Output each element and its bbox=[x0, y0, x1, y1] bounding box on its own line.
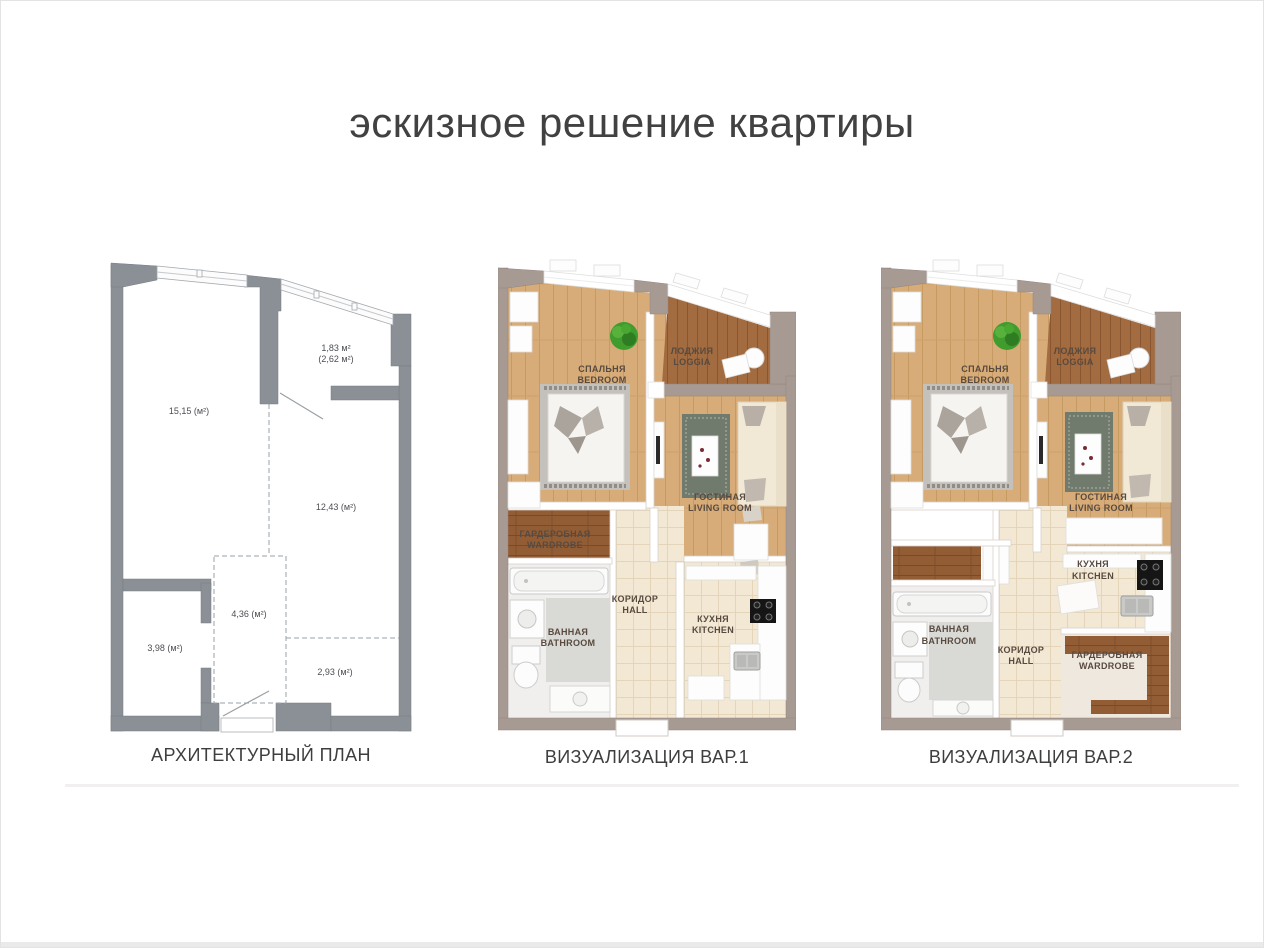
kitchen-cabinets bbox=[686, 566, 756, 580]
entry-threshold bbox=[1011, 720, 1063, 736]
area-label-living: 12,43 (м²) bbox=[316, 502, 356, 512]
room-label-wardrobe-en: WARDROBE bbox=[1079, 661, 1135, 671]
coffee-table bbox=[1075, 434, 1101, 474]
toilet-bowl bbox=[898, 678, 920, 702]
bed bbox=[931, 394, 1007, 482]
dresser-top bbox=[893, 546, 981, 584]
sofa-cushion bbox=[1129, 474, 1151, 498]
page: эскизное решение квартиры bbox=[0, 0, 1264, 948]
shelf bbox=[891, 482, 923, 508]
wardrobe-bottom bbox=[1091, 700, 1169, 714]
closet bbox=[510, 292, 538, 322]
visualization-var1-drawing: СПАЛЬНЯ BEDROOM ЛОДЖИЯ LOGGIA ГОСТИНАЯ L… bbox=[498, 256, 796, 738]
room-label-living-ru: ГОСТИНАЯ bbox=[1075, 492, 1127, 502]
room-label-bedroom-en: BEDROOM bbox=[577, 375, 626, 385]
room-label-bedroom-ru: СПАЛЬНЯ bbox=[578, 364, 625, 374]
room-label-loggia-en: LOGGIA bbox=[1056, 357, 1093, 367]
kitchen-cart bbox=[688, 676, 724, 700]
shelf bbox=[508, 482, 540, 508]
room-label-wardrobe-en: WARDROBE bbox=[527, 540, 583, 550]
room-label-hall-ru: КОРИДОР bbox=[612, 594, 658, 604]
dresser bbox=[510, 326, 532, 352]
room-label-bathroom-ru: ВАННАЯ bbox=[929, 624, 969, 634]
dining-table bbox=[734, 524, 768, 560]
room-label-hall-en: HALL bbox=[1008, 656, 1033, 666]
room-label-wardrobe-ru: ГАРДЕРОБНАЯ bbox=[1071, 650, 1142, 660]
room-label-living-ru: ГОСТИНАЯ bbox=[694, 492, 746, 502]
room-label-hall-ru: КОРИДОР bbox=[998, 645, 1044, 655]
area-label-loggia-line2: (2,62 м²) bbox=[318, 354, 353, 364]
room-label-loggia-en: LOGGIA bbox=[673, 357, 710, 367]
plan-doors bbox=[221, 393, 323, 732]
bed bbox=[548, 394, 624, 482]
architectural-plan-drawing: 1,83 м² (2,62 м²) 15,15 (м²) 12,43 (м²) … bbox=[109, 259, 413, 736]
plan-walls bbox=[111, 263, 411, 731]
panel-architectural-plan: 1,83 м² (2,62 м²) 15,15 (м²) 12,43 (м²) … bbox=[109, 259, 413, 766]
closet bbox=[893, 292, 921, 322]
page-title: эскизное решение квартиры bbox=[1, 99, 1263, 147]
room-label-kitchen-ru: КУХНЯ bbox=[697, 614, 729, 624]
room-label-living-en: LIVING ROOM bbox=[1069, 503, 1133, 513]
tv bbox=[1039, 436, 1043, 464]
caption-visualization-var2: ВИЗУАЛИЗАЦИЯ ВАР.2 bbox=[881, 747, 1181, 768]
room-label-bedroom-ru: СПАЛЬНЯ bbox=[961, 364, 1008, 374]
area-label-bathroom: 3,98 (м²) bbox=[147, 643, 182, 653]
page-bottom-edge bbox=[1, 942, 1263, 947]
bench bbox=[508, 400, 528, 474]
room-label-bedroom-en: BEDROOM bbox=[960, 375, 1009, 385]
room-label-kitchen-en: KITCHEN bbox=[692, 625, 734, 635]
visualization-var2-drawing: СПАЛЬНЯ BEDROOM ЛОДЖИЯ LOGGIA ГОСТИНАЯ L… bbox=[881, 256, 1181, 738]
sofa-back bbox=[776, 402, 786, 506]
basin bbox=[573, 692, 587, 706]
coffee-table bbox=[692, 436, 718, 476]
entry-threshold bbox=[616, 720, 668, 736]
toilet-bowl bbox=[514, 662, 538, 688]
divider-line bbox=[65, 784, 1239, 787]
area-label-hall: 4,36 (м²) bbox=[231, 609, 266, 619]
room-label-bathroom-en: BATHROOM bbox=[922, 636, 977, 646]
plant-icon bbox=[993, 322, 1021, 350]
v2-bathroom-fixtures bbox=[893, 592, 993, 716]
stove bbox=[750, 599, 776, 623]
plan-area-labels: 1,83 м² (2,62 м²) 15,15 (м²) 12,43 (м²) … bbox=[147, 343, 356, 677]
stove bbox=[1137, 560, 1163, 590]
plan-dashed-partitions bbox=[214, 404, 399, 703]
area-label-loggia-line1: 1,83 м² bbox=[321, 343, 350, 353]
room-label-loggia-ru: ЛОДЖИЯ bbox=[671, 346, 713, 356]
sofa-cushion bbox=[744, 478, 766, 502]
room-label-kitchen-ru: КУХНЯ bbox=[1077, 559, 1109, 569]
basin bbox=[957, 702, 969, 714]
room-label-kitchen-en: KITCHEN bbox=[1072, 571, 1114, 581]
room-label-hall-en: HALL bbox=[622, 605, 647, 615]
sofa-back bbox=[1161, 402, 1171, 502]
kitchen-counter bbox=[758, 566, 786, 700]
bench bbox=[891, 400, 911, 474]
room-label-loggia-ru: ЛОДЖИЯ bbox=[1054, 346, 1096, 356]
area-label-bedroom: 15,15 (м²) bbox=[169, 406, 209, 416]
kitchen-island bbox=[1057, 580, 1099, 614]
tv bbox=[656, 436, 660, 464]
room-label-living-en: LIVING ROOM bbox=[688, 503, 752, 513]
plant-icon bbox=[610, 322, 638, 350]
room-label-bathroom-en: BATHROOM bbox=[541, 638, 596, 648]
caption-visualization-var1: ВИЗУАЛИЗАЦИЯ ВАР.1 bbox=[498, 747, 796, 768]
panel-visualization-var2: СПАЛЬНЯ BEDROOM ЛОДЖИЯ LOGGIA ГОСТИНАЯ L… bbox=[881, 256, 1181, 768]
room-label-bathroom-ru: ВАННАЯ bbox=[548, 627, 588, 637]
toilet-tank bbox=[895, 662, 923, 678]
toilet-tank bbox=[512, 646, 540, 664]
area-label-kitchen: 2,93 (м²) bbox=[317, 667, 352, 677]
room-label-wardrobe-ru: ГАРДЕРОБНАЯ bbox=[519, 529, 590, 539]
dresser bbox=[893, 326, 915, 352]
white-sofa bbox=[1066, 518, 1162, 544]
panel-visualization-var1: СПАЛЬНЯ BEDROOM ЛОДЖИЯ LOGGIA ГОСТИНАЯ L… bbox=[498, 256, 796, 768]
caption-architectural-plan: АРХИТЕКТУРНЫЙ ПЛАН bbox=[109, 745, 413, 766]
